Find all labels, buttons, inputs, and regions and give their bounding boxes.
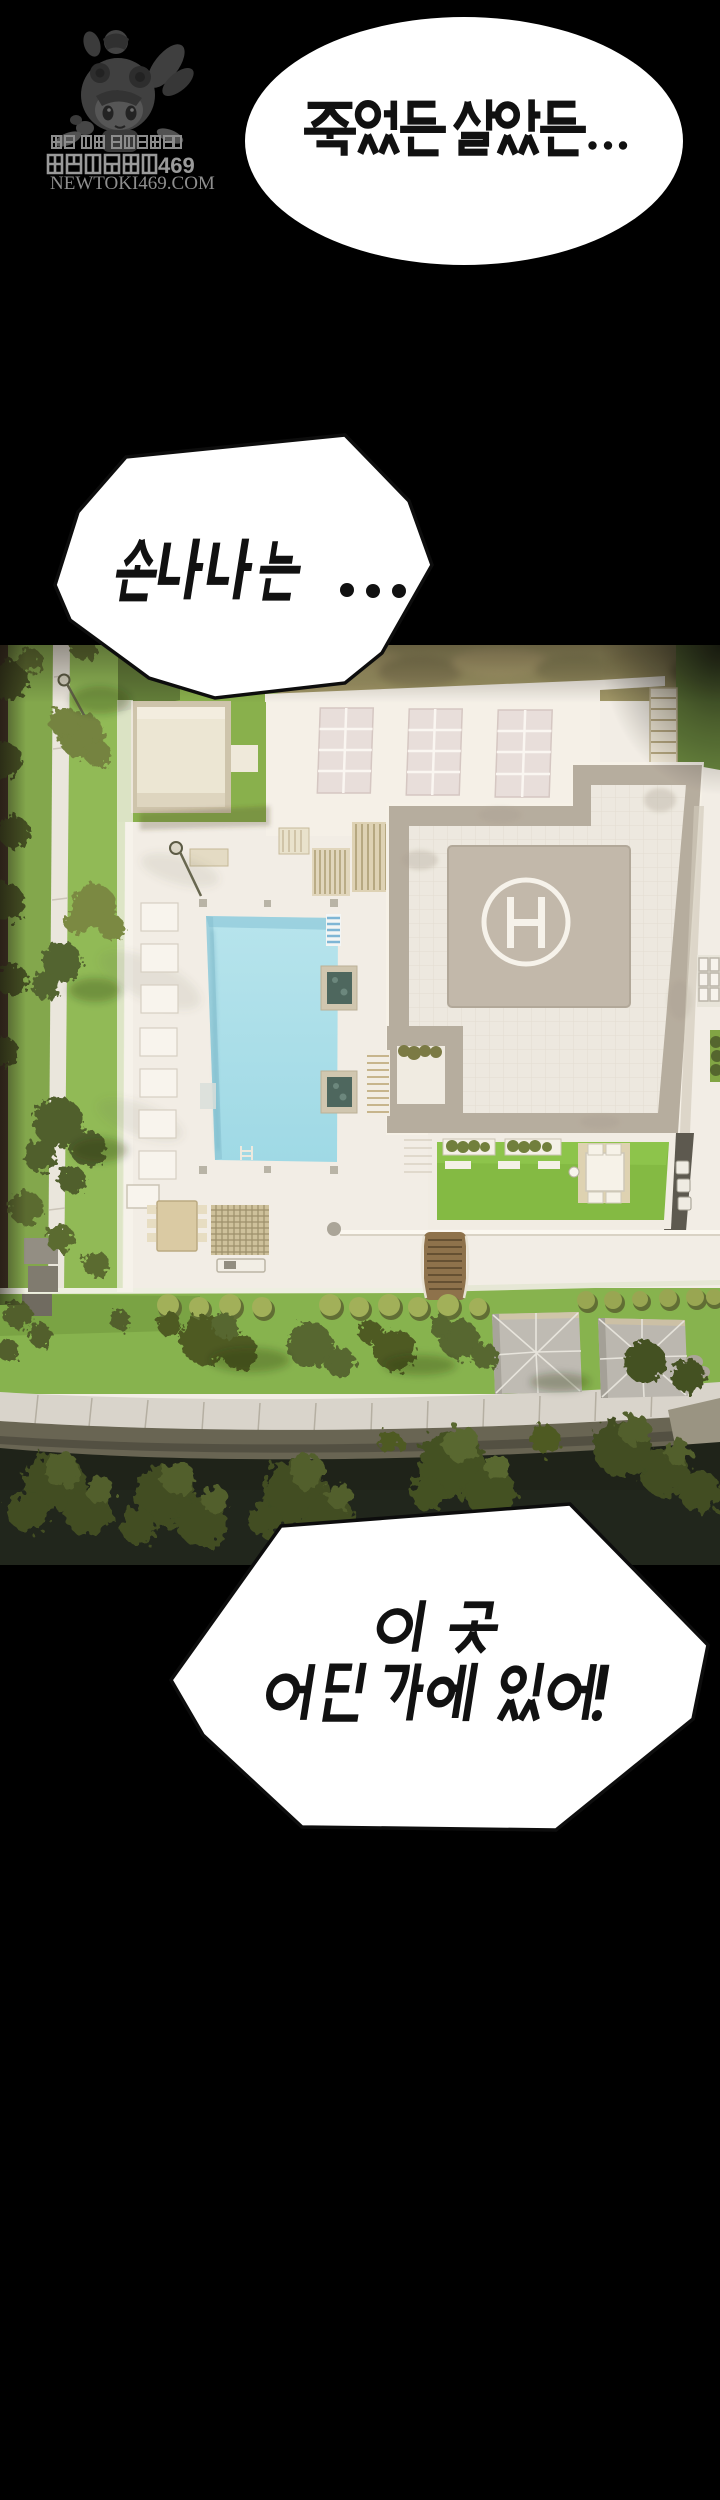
svg-text:NEWTOKI469.COM: NEWTOKI469.COM <box>50 173 215 194</box>
